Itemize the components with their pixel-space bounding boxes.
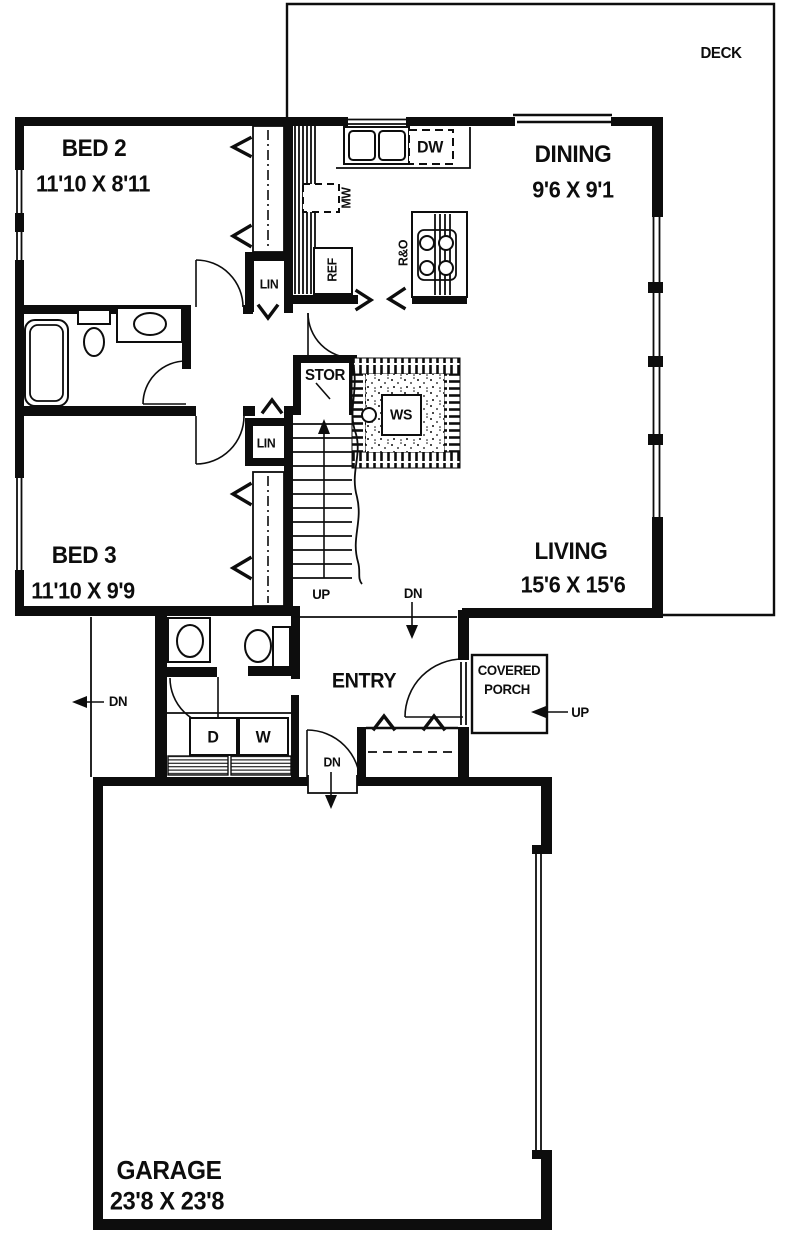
- garage-label: GARAGE: [116, 1157, 221, 1183]
- up-stairs-label: UP: [312, 587, 330, 601]
- powder-room-fixtures: [168, 618, 290, 667]
- deck-label: DECK: [700, 46, 741, 62]
- sink: [344, 127, 409, 164]
- living-label: LIVING: [535, 540, 608, 564]
- linen-lower-label: LIN: [257, 437, 276, 450]
- porch-label-line2: PORCH: [484, 682, 530, 696]
- dn-exterior-label: DN: [109, 694, 127, 708]
- dishwasher-label: DW: [417, 139, 443, 156]
- up-porch-label: UP: [571, 705, 589, 719]
- garage-stair-landing: [308, 775, 357, 793]
- washer-label: W: [256, 729, 271, 746]
- microwave-box: [303, 184, 339, 212]
- entry-label: ENTRY: [332, 671, 396, 692]
- laundry: [168, 718, 291, 775]
- bed3-label: BED 3: [52, 544, 117, 568]
- garage-dims: 23'8 X 23'8: [110, 1190, 224, 1215]
- bed2-label: BED 2: [62, 137, 127, 161]
- dn-garage-label: DN: [324, 756, 341, 769]
- porch-label-line1: COVERED: [478, 663, 540, 677]
- vanity-sink: [117, 308, 182, 342]
- linen-upper-label: LIN: [260, 278, 279, 291]
- dryer-label: D: [207, 729, 218, 746]
- floor-plan: DECK BED 2 11'10 X 8'11 DINING 9'6 X 9'1…: [0, 0, 800, 1233]
- toilet: [78, 310, 110, 356]
- bathtub: [25, 320, 68, 406]
- living-dims: 15'6 X 15'6: [521, 574, 626, 597]
- dining-label: DINING: [535, 143, 612, 167]
- deck-outline: [287, 4, 774, 615]
- range-oven: [412, 212, 467, 297]
- bed3-dims: 11'10 X 9'9: [31, 580, 135, 603]
- range-oven-label: R&O: [397, 240, 410, 266]
- bathroom-fixtures: [25, 308, 182, 406]
- storage-label: STOR: [305, 368, 345, 384]
- entry-closet: [366, 716, 458, 752]
- dining-dims: 9'6 X 9'1: [532, 179, 613, 202]
- wood-stove-label: WS: [390, 408, 412, 423]
- dn-hall-label: DN: [404, 586, 422, 600]
- toilet-lower: [245, 627, 290, 667]
- microwave-label: MW: [340, 187, 353, 208]
- flue: [362, 408, 376, 422]
- refrigerator-label: REF: [326, 258, 339, 282]
- bed2-dims: 11'10 X 8'11: [36, 173, 150, 196]
